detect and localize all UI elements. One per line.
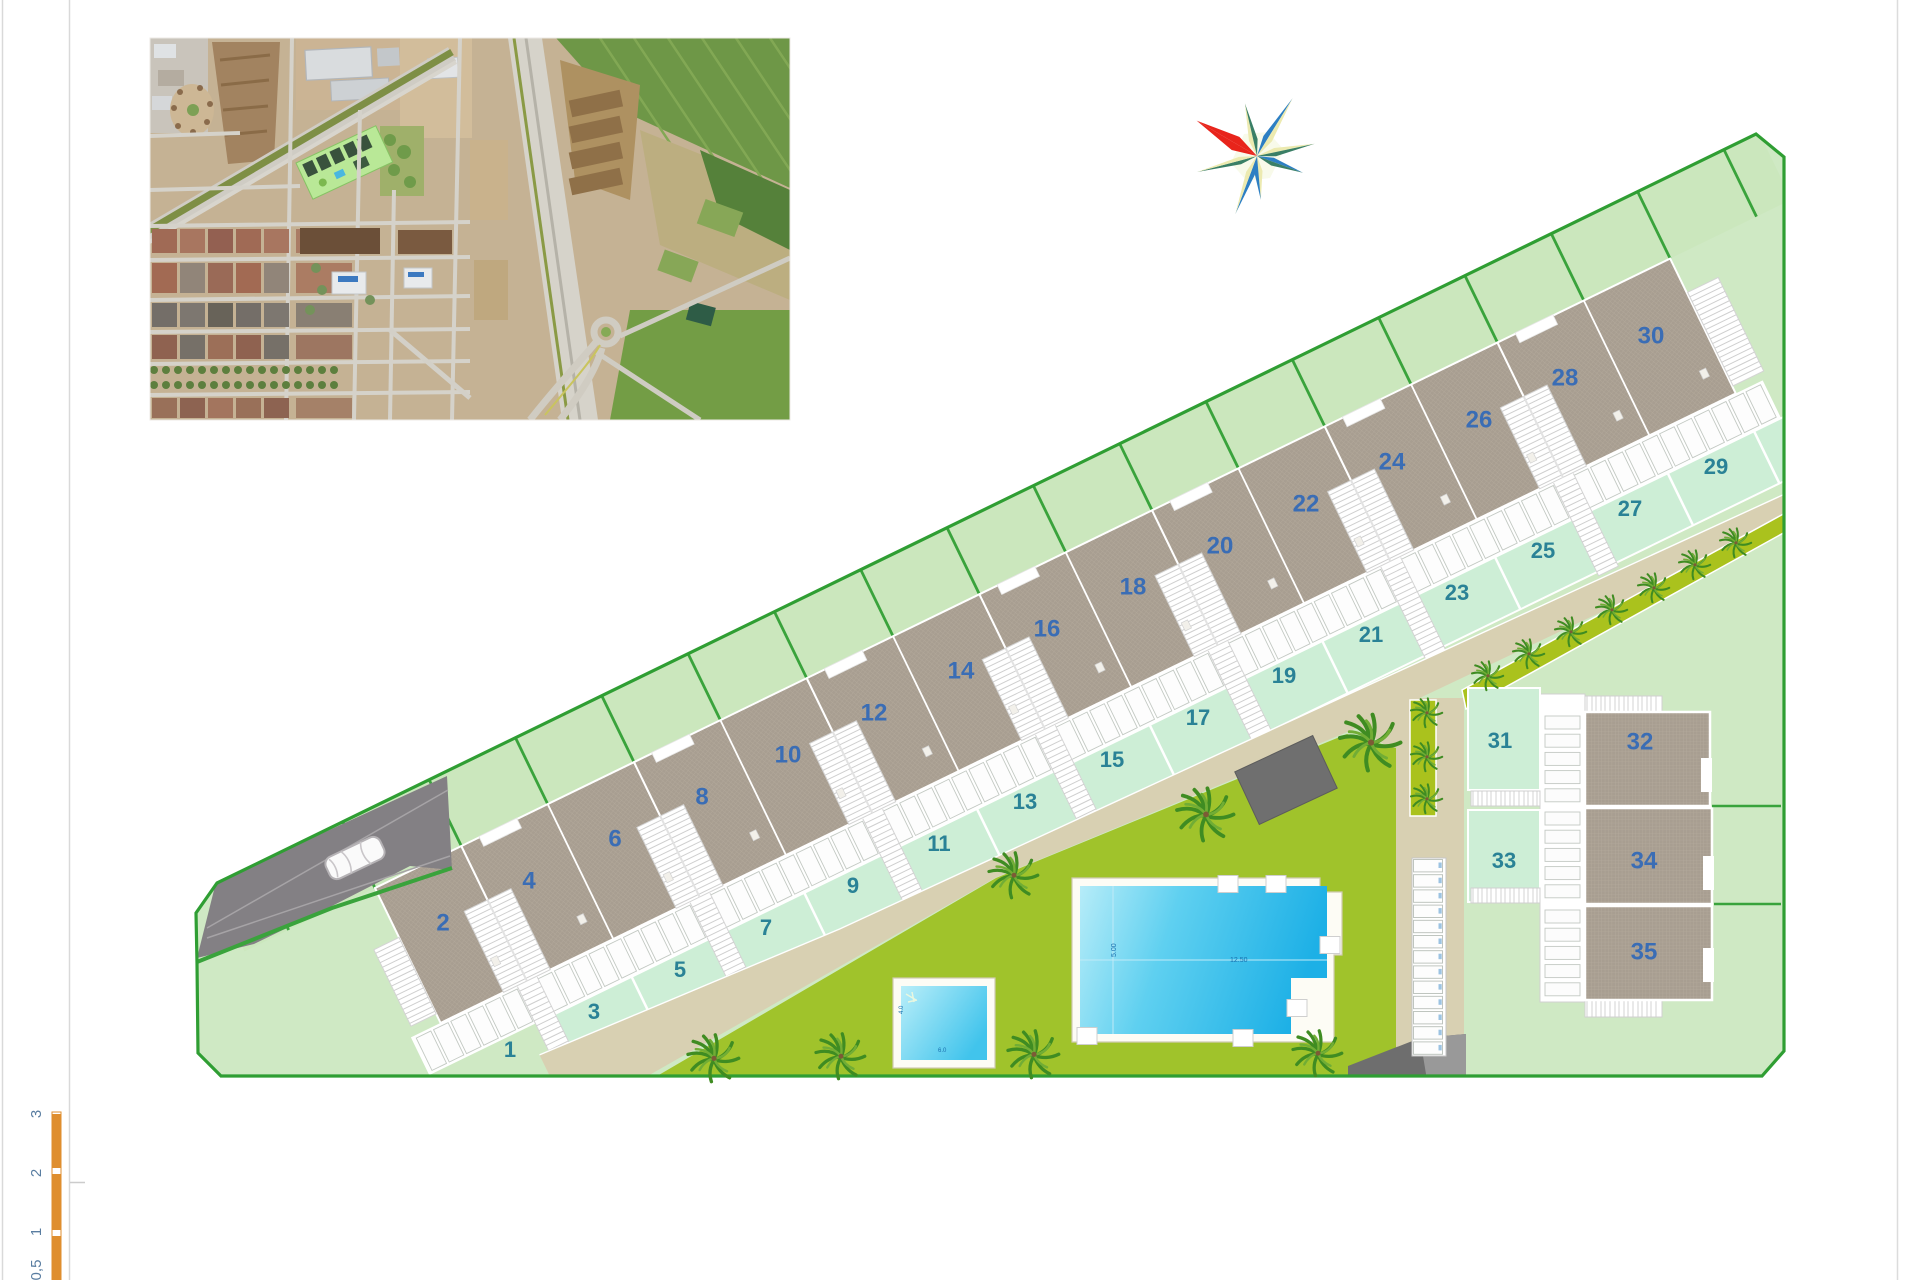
svg-text:13: 13 — [1013, 789, 1037, 814]
svg-text:9: 9 — [847, 873, 859, 898]
svg-text:5: 5 — [674, 957, 686, 982]
svg-text:14: 14 — [948, 657, 975, 684]
svg-text:4: 4 — [522, 867, 536, 894]
svg-text:7: 7 — [760, 915, 772, 940]
svg-text:4.0: 4.0 — [899, 1005, 905, 1014]
svg-text:35: 35 — [1631, 938, 1658, 965]
svg-text:3: 3 — [588, 999, 600, 1024]
svg-text:11: 11 — [927, 831, 950, 856]
svg-text:26: 26 — [1466, 406, 1493, 433]
svg-text:6.0: 6.0 — [938, 1048, 947, 1054]
svg-text:20: 20 — [1207, 532, 1234, 559]
svg-text:21: 21 — [1359, 622, 1383, 647]
svg-text:25: 25 — [1531, 538, 1555, 563]
svg-text:8: 8 — [695, 783, 708, 810]
svg-text:31: 31 — [1488, 728, 1512, 753]
svg-text:23: 23 — [1445, 580, 1469, 605]
svg-text:18: 18 — [1120, 573, 1147, 600]
svg-text:1: 1 — [28, 1228, 45, 1236]
svg-text:10: 10 — [775, 741, 802, 768]
svg-text:1: 1 — [504, 1037, 516, 1062]
svg-text:29: 29 — [1704, 454, 1728, 479]
svg-text:27: 27 — [1618, 496, 1642, 521]
svg-text:2: 2 — [28, 1169, 45, 1177]
svg-text:19: 19 — [1272, 663, 1296, 688]
svg-text:33: 33 — [1492, 848, 1516, 873]
svg-text:5.00: 5.00 — [1111, 943, 1118, 957]
svg-text:24: 24 — [1379, 448, 1406, 475]
svg-text:22: 22 — [1293, 490, 1320, 517]
svg-text:2: 2 — [436, 909, 449, 936]
svg-text:3: 3 — [28, 1110, 45, 1118]
svg-text:6: 6 — [608, 825, 621, 852]
svg-text:16: 16 — [1034, 615, 1061, 642]
svg-text:28: 28 — [1552, 364, 1579, 391]
svg-text:12.50: 12.50 — [1230, 957, 1248, 964]
svg-text:34: 34 — [1631, 847, 1658, 874]
svg-text:30: 30 — [1638, 322, 1665, 349]
svg-text:15: 15 — [1100, 747, 1124, 772]
svg-text:17: 17 — [1186, 705, 1210, 730]
svg-text:32: 32 — [1627, 728, 1654, 755]
svg-text:0,5: 0,5 — [28, 1260, 45, 1280]
svg-text:12: 12 — [861, 699, 888, 726]
